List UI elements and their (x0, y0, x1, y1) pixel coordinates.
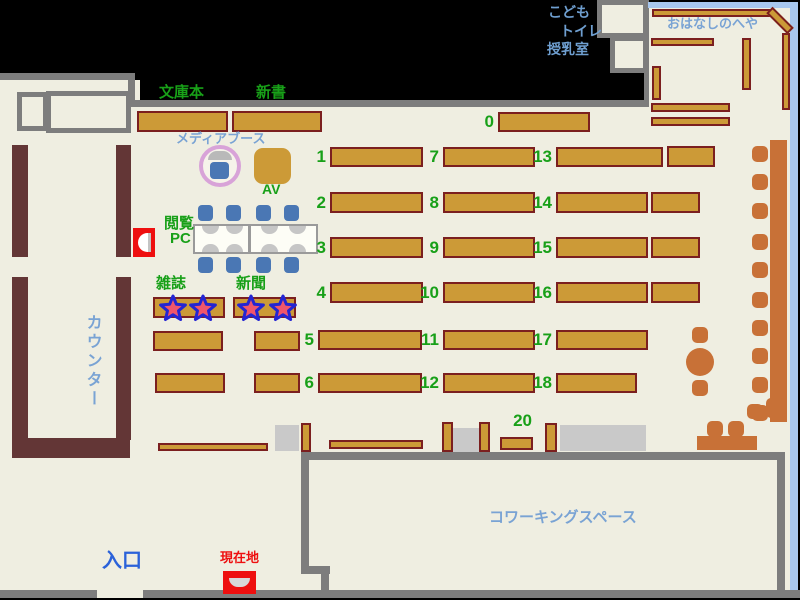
chair (752, 292, 768, 308)
bookshelf-3 (330, 237, 423, 258)
shelf (153, 331, 223, 351)
bookshelf-number-2: 2 (310, 192, 326, 213)
chair (752, 146, 768, 162)
shelf (479, 422, 490, 452)
shelf (651, 192, 700, 213)
bookshelf-10 (443, 282, 535, 303)
chair (752, 234, 768, 250)
bookshelf-4 (330, 282, 423, 303)
chair (747, 404, 763, 419)
bookshelf-number-5: 5 (298, 330, 314, 350)
bench-block (453, 428, 479, 452)
bookshelf-number-11: 11 (415, 330, 439, 350)
chair (766, 398, 786, 418)
bookshelf-15 (556, 237, 648, 258)
star-icon (188, 293, 218, 323)
bookshelf-number-3: 3 (310, 237, 326, 258)
chair (226, 257, 241, 273)
star-marker (158, 293, 188, 323)
library-floor-map: 012345678910111213141516171820 文庫本 新書 メデ… (0, 0, 800, 600)
shelf (742, 38, 751, 90)
shelf (651, 103, 730, 112)
chair (198, 205, 213, 221)
bookshelf-number-15: 15 (528, 237, 552, 258)
bookshelf-14 (556, 192, 648, 213)
chair (692, 327, 708, 343)
bookshelf-number-4: 4 (310, 282, 326, 303)
shelf (254, 331, 300, 351)
label-coworking-space: コワーキングスペース (489, 510, 637, 527)
star-icon (268, 293, 298, 323)
generated-layer: 012345678910111213141516171820 (0, 0, 800, 600)
chair (752, 262, 768, 278)
chair (256, 257, 271, 273)
bookshelf-9 (443, 237, 535, 258)
label-zasshi: 雑誌 (156, 276, 186, 293)
shelf (301, 423, 311, 452)
label-av: AV (262, 182, 280, 197)
label-shinbun: 新聞 (236, 276, 266, 293)
bookshelf-number-16: 16 (528, 282, 552, 303)
shelf (651, 237, 700, 258)
bookshelf-2 (330, 192, 423, 213)
chair (284, 205, 299, 221)
bookshelf-1 (330, 147, 423, 167)
bookshelf-6 (318, 373, 422, 393)
chair (752, 203, 768, 219)
shelf (232, 111, 322, 132)
chair (692, 380, 708, 396)
star-marker (188, 293, 218, 323)
chair (752, 377, 768, 393)
bookshelf-number-18: 18 (528, 373, 552, 393)
star-marker (236, 293, 266, 323)
shelf (254, 373, 300, 393)
label-counter: カウンター (83, 314, 101, 409)
bookshelf-number-6: 6 (298, 373, 314, 393)
bookshelf-number-17: 17 (528, 330, 552, 350)
bookshelf-0 (498, 112, 590, 132)
bookshelf-12 (443, 373, 535, 393)
chair (728, 421, 744, 437)
label-media-booth: メディアブース (176, 132, 265, 146)
shelf (158, 443, 268, 451)
label-kids: こども (548, 5, 590, 20)
label-toilet: トイレ (560, 24, 602, 39)
bookshelf-number-0: 0 (480, 112, 494, 132)
bookshelf-number-7: 7 (423, 147, 439, 167)
chair (752, 320, 768, 336)
bookshelf-16 (556, 282, 648, 303)
bench-block (275, 425, 299, 451)
shelf (766, 7, 794, 35)
bookshelf-7 (443, 147, 535, 167)
chair (226, 205, 241, 221)
bench-block (560, 425, 646, 451)
shelf (651, 117, 730, 126)
shelf (782, 33, 790, 110)
bookshelf-11 (443, 330, 535, 350)
shelf (652, 66, 661, 100)
chair (752, 174, 768, 190)
shelf (137, 111, 228, 132)
shelf (651, 38, 714, 46)
chair (752, 348, 768, 364)
shelf (545, 423, 557, 452)
label-nursing: 授乳室 (547, 42, 589, 57)
bookshelf-number-12: 12 (415, 373, 439, 393)
shelf (651, 282, 700, 303)
bookshelf-number-1: 1 (310, 147, 326, 167)
label-entrance: 入口 (102, 550, 142, 572)
bookshelf-number-13: 13 (528, 147, 552, 167)
bookshelf-18 (556, 373, 637, 393)
chair (707, 421, 723, 437)
bookshelf-8 (443, 192, 535, 213)
shelf (442, 422, 453, 452)
label-current-location: 現在地 (220, 551, 259, 565)
chair (198, 257, 213, 273)
label-reading-pc-2: PC (170, 231, 191, 248)
bookshelf-20 (500, 437, 533, 450)
bookshelf-number-10: 10 (415, 282, 439, 303)
shelf (667, 146, 715, 167)
shelf (329, 440, 423, 449)
label-shinsho: 新書 (256, 85, 286, 102)
bookshelf-number-14: 14 (528, 192, 552, 213)
star-icon (158, 293, 188, 323)
chair (284, 257, 299, 273)
bookshelf-number-9: 9 (423, 237, 439, 258)
label-bunkobon: 文庫本 (159, 85, 204, 102)
bookshelf-number-8: 8 (423, 192, 439, 213)
star-marker (268, 293, 298, 323)
label-ohanashi-room: おはなしのへや (667, 17, 758, 31)
bookshelf-13 (556, 147, 663, 167)
chair (256, 205, 271, 221)
bookshelf-5 (318, 330, 422, 350)
star-icon (236, 293, 266, 323)
shelf (155, 373, 225, 393)
bookshelf-number-20: 20 (502, 414, 532, 427)
bookshelf-17 (556, 330, 648, 350)
